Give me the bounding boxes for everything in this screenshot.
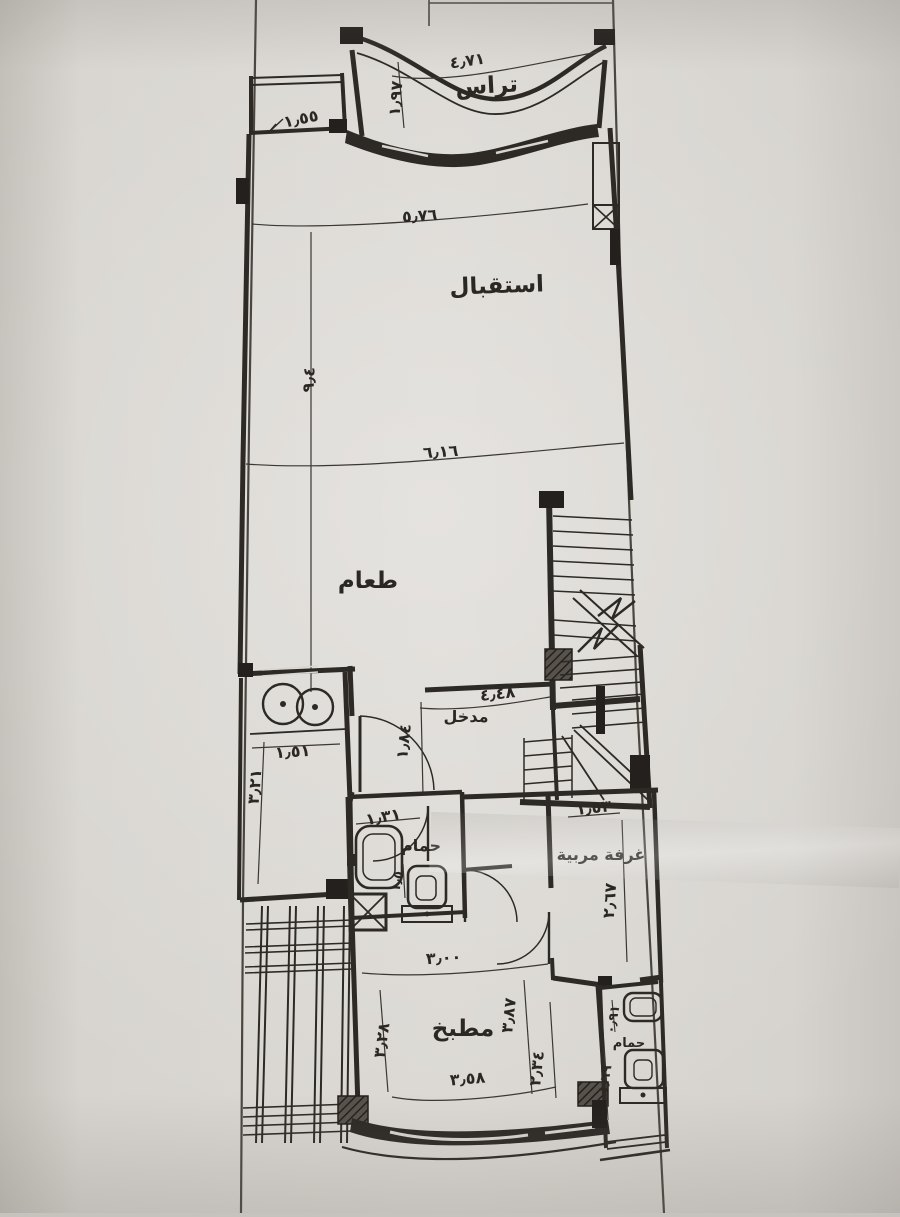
stairwell-wall-left-lower [553, 710, 557, 800]
nanny-room-label: غرفة مربية [557, 845, 646, 864]
nanny-left-wall-lower [552, 958, 553, 980]
dim-entrance-depth: ١٫٨٤ [392, 723, 415, 760]
dim-reception-depth: ٩٫٤ [298, 366, 318, 392]
terrace-label: تراس [455, 71, 519, 100]
terrace-wall-left [352, 50, 362, 136]
dim-hall-width: ٣٫٠٠ [425, 947, 462, 968]
dim-line [622, 820, 627, 962]
door-arc [497, 912, 549, 964]
outer-face-line [600, 1150, 670, 1160]
staircase [520, 491, 653, 808]
bathroom1-label: حمام [401, 836, 441, 855]
closet-window-inner [252, 82, 342, 85]
dim-bathroom2-width: ٠٫٩١ [604, 1004, 624, 1035]
floor-plan-photo: تراس استقبال طعام مدخل حمام غرفة مربية م… [0, 0, 900, 1213]
entry-steps [524, 735, 572, 800]
nanny-right-wall [654, 790, 661, 983]
pergola-grid [243, 906, 352, 1143]
column [238, 663, 253, 677]
kitchen-window-wall [350, 1118, 610, 1145]
dim-terrace-depth: ١٫٩٧ [385, 80, 407, 117]
column [340, 27, 363, 44]
column [236, 178, 249, 204]
dim-terrace-width: ٤٫٧١ [448, 49, 486, 73]
counter-line [250, 729, 346, 734]
column [539, 491, 564, 508]
washer-knob [280, 701, 286, 707]
nanny-left-wall-upper [548, 795, 551, 888]
column [630, 755, 650, 789]
column [594, 29, 615, 45]
reception-label: استقبال [449, 271, 544, 300]
dim-kitchen-width: ٣٫٥٨ [449, 1067, 486, 1089]
dining-label: طعام [338, 568, 398, 594]
toilet-flush [641, 1093, 646, 1098]
laundry-divider-wall [350, 666, 352, 716]
shaft-x [350, 894, 386, 930]
dim-reception-width: ٥٫٧٦ [401, 205, 438, 226]
stair-treads-upper [553, 516, 636, 641]
nanny-bottom-wall-left [553, 978, 602, 985]
dim-bathroom1-width: ١٫٣١ [364, 804, 402, 829]
bathroom2-label: حمام [613, 1036, 646, 1051]
wall-fill [610, 229, 620, 265]
dim-kitchen-left-depth: ٣٫٢٨ [370, 1021, 394, 1059]
dim-bathroom2-depth: ١٫٦٩ [596, 1064, 616, 1095]
toilet-bowl [634, 1060, 652, 1080]
wall-fill [592, 1100, 607, 1128]
dim-entrance-width: ٤٫٤٨ [479, 682, 516, 705]
bathroom1-top-wall [348, 792, 462, 797]
dim-line [550, 1002, 556, 1098]
hall-bottom-wall [462, 790, 658, 797]
dim-kitchen-inner-depth: ٢٫٣٤ [525, 1050, 548, 1087]
toilet-flush [425, 912, 430, 917]
dim-laundry-depth: ٣٫٢١ [244, 768, 266, 805]
closet-window-outer [252, 75, 342, 78]
corridor-wall [462, 866, 512, 870]
washer-knob [312, 704, 318, 710]
door-arc [465, 870, 517, 922]
column [329, 119, 347, 133]
nanny-bottom-wall-right [640, 977, 662, 980]
terrace-wall-right [599, 60, 605, 128]
dim-nanny-width: ١٫٥٣ [575, 796, 612, 819]
kitchen-label: مطبخ [432, 1016, 495, 1042]
floor-plan-svg: تراس استقبال طعام مدخل حمام غرفة مربية م… [0, 0, 900, 1213]
dim-line [258, 742, 264, 884]
dim-nanny-depth: ٢٫٦٧ [599, 882, 620, 919]
toilet-bowl [416, 876, 436, 900]
sink-basin [363, 834, 395, 880]
hatched-column [545, 649, 572, 680]
dim-kitchen-right-depth: ٣٫٨٧ [497, 997, 520, 1034]
entrance-label: مدخل [444, 707, 489, 726]
dim-laundry-width: ١٫٥١ [274, 741, 311, 762]
stair-break-zigzag [598, 598, 635, 619]
dim-dining-width: ٦٫١٦ [422, 441, 459, 462]
toilet-icon [408, 866, 446, 908]
labels: تراس استقبال طعام مدخل حمام غرفة مربية م… [244, 49, 646, 1095]
stair-post [596, 686, 605, 734]
property-line-right [613, 0, 664, 1213]
laundry-left-wall [239, 678, 241, 900]
